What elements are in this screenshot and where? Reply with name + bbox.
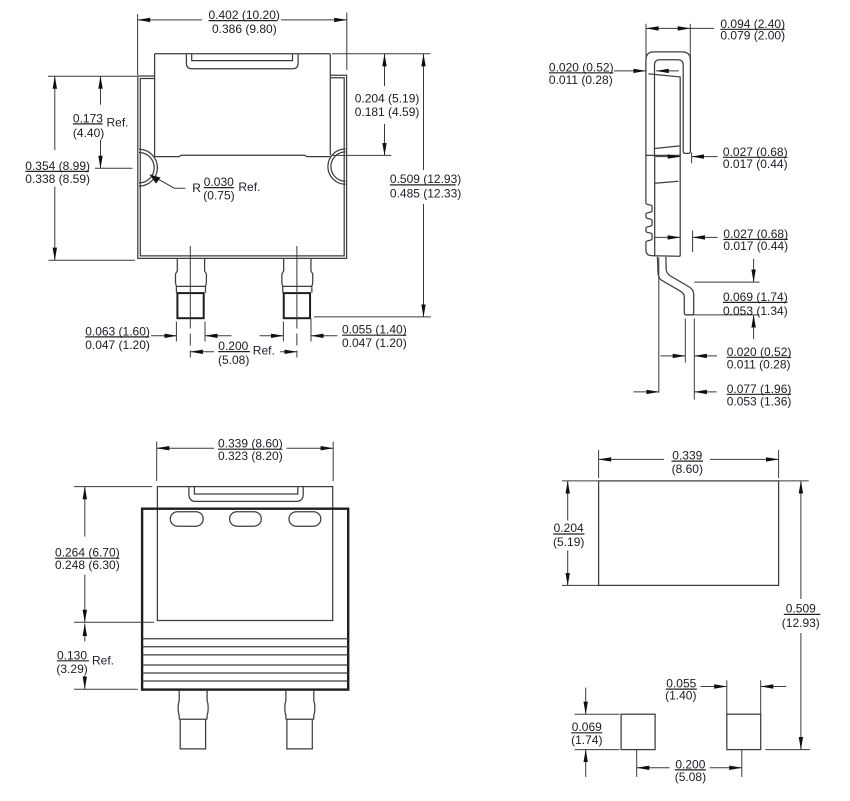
svg-text:Ref.: Ref. [107,115,129,129]
svg-text:(1.74): (1.74) [571,733,602,747]
svg-text:0.204 (5.19): 0.204 (5.19) [355,92,420,106]
svg-text:0.047 (1.20): 0.047 (1.20) [85,338,150,352]
svg-text:(3.29): (3.29) [56,662,87,676]
svg-text:0.047 (1.20): 0.047 (1.20) [342,336,407,350]
svg-text:0.011 (0.28): 0.011 (0.28) [727,357,791,371]
svg-text:(5.08): (5.08) [218,353,249,367]
svg-text:0.011 (0.28): 0.011 (0.28) [549,73,613,87]
svg-text:(8.60): (8.60) [672,462,703,476]
svg-text:0.386 (9.80): 0.386 (9.80) [212,22,277,36]
svg-text:(0.75): (0.75) [203,188,234,202]
svg-text:(12.93): (12.93) [782,616,820,630]
svg-text:0.017 (0.44): 0.017 (0.44) [723,157,788,171]
svg-text:0.017 (0.44): 0.017 (0.44) [723,239,788,253]
svg-text:0.485 (12.33): 0.485 (12.33) [390,187,461,201]
svg-text:0.509: 0.509 [786,601,816,615]
svg-text:0.204: 0.204 [554,521,584,535]
svg-text:0.323 (8.20): 0.323 (8.20) [218,449,283,463]
svg-text:0.181 (4.59): 0.181 (4.59) [355,105,420,119]
svg-text:0.173: 0.173 [73,111,103,125]
svg-text:(5.19): (5.19) [553,535,584,549]
svg-text:0.063 (1.60): 0.063 (1.60) [85,324,150,338]
svg-text:Ref.: Ref. [253,344,275,358]
svg-text:0.338 (8.59): 0.338 (8.59) [25,172,90,186]
svg-text:R: R [192,181,201,195]
svg-text:0.079 (2.00): 0.079 (2.00) [720,29,785,43]
svg-text:Ref.: Ref. [92,654,114,668]
svg-text:(4.40): (4.40) [73,126,104,140]
svg-text:(1.40): (1.40) [665,689,696,703]
svg-text:0.248 (6.30): 0.248 (6.30) [55,558,120,572]
svg-text:0.509 (12.93): 0.509 (12.93) [390,172,461,186]
svg-text:0.053 (1.34): 0.053 (1.34) [723,304,788,318]
svg-text:0.053 (1.36): 0.053 (1.36) [727,395,792,409]
svg-text:0.030: 0.030 [204,175,234,189]
svg-text:(5.08): (5.08) [675,770,706,784]
svg-text:0.055 (1.40): 0.055 (1.40) [342,323,407,337]
svg-text:Ref.: Ref. [238,180,260,194]
